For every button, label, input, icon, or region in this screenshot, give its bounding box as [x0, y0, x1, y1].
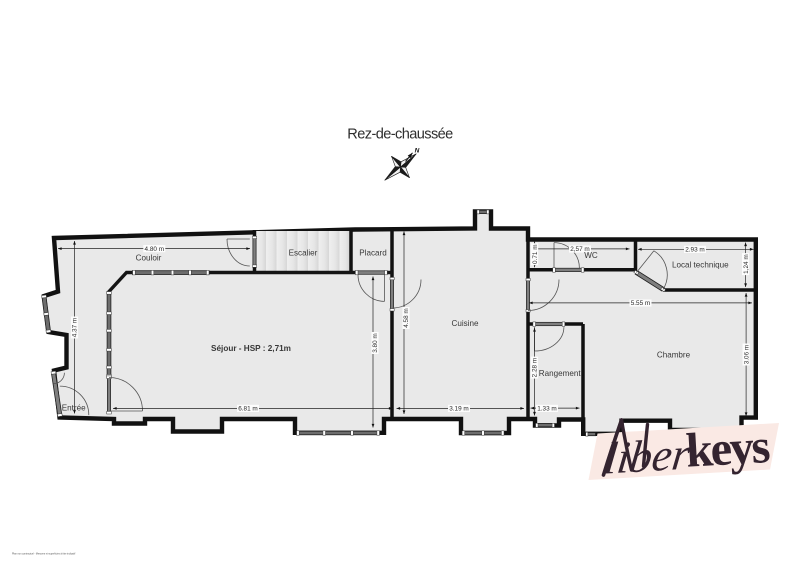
svg-text:1.33 m: 1.33 m: [537, 406, 557, 413]
svg-text:N: N: [415, 148, 420, 155]
svg-text:Cuisine: Cuisine: [452, 319, 479, 328]
svg-text:4.80 m: 4.80 m: [145, 246, 165, 253]
svg-text:3.80 m: 3.80 m: [372, 333, 379, 353]
svg-text:Entrée: Entrée: [62, 403, 86, 412]
svg-text:Rangement: Rangement: [539, 369, 582, 378]
svg-text:Local technique: Local technique: [672, 260, 729, 269]
svg-text:Chambre: Chambre: [657, 351, 691, 360]
svg-text:Séjour - HSP : 2,71m: Séjour - HSP : 2,71m: [211, 344, 291, 353]
svg-text:6.81 m: 6.81 m: [238, 406, 258, 413]
svg-text:WC: WC: [584, 251, 598, 260]
svg-text:1,24 m: 1,24 m: [743, 254, 750, 274]
svg-text:2.93 m: 2.93 m: [685, 247, 705, 254]
svg-text:0.71 m: 0.71 m: [532, 244, 539, 264]
svg-text:4.37 m: 4.37 m: [72, 318, 79, 338]
svg-text:Escalier: Escalier: [289, 249, 318, 258]
svg-text:keys: keys: [684, 420, 770, 478]
svg-text:3.06 m: 3.06 m: [743, 345, 750, 365]
svg-text:Rez-de-chaussée: Rez-de-chaussée: [347, 127, 453, 143]
svg-text:Plan non contractuel - Mesures: Plan non contractuel - Mesures et superf…: [12, 552, 76, 555]
svg-text:Couloir: Couloir: [136, 253, 162, 262]
svg-text:2.28 m: 2.28 m: [532, 358, 539, 378]
svg-text:5.55 m: 5.55 m: [631, 300, 651, 307]
svg-text:4.58 m: 4.58 m: [403, 308, 410, 328]
svg-text:Placard: Placard: [359, 249, 386, 258]
svg-text:3.19 m: 3.19 m: [449, 406, 469, 413]
